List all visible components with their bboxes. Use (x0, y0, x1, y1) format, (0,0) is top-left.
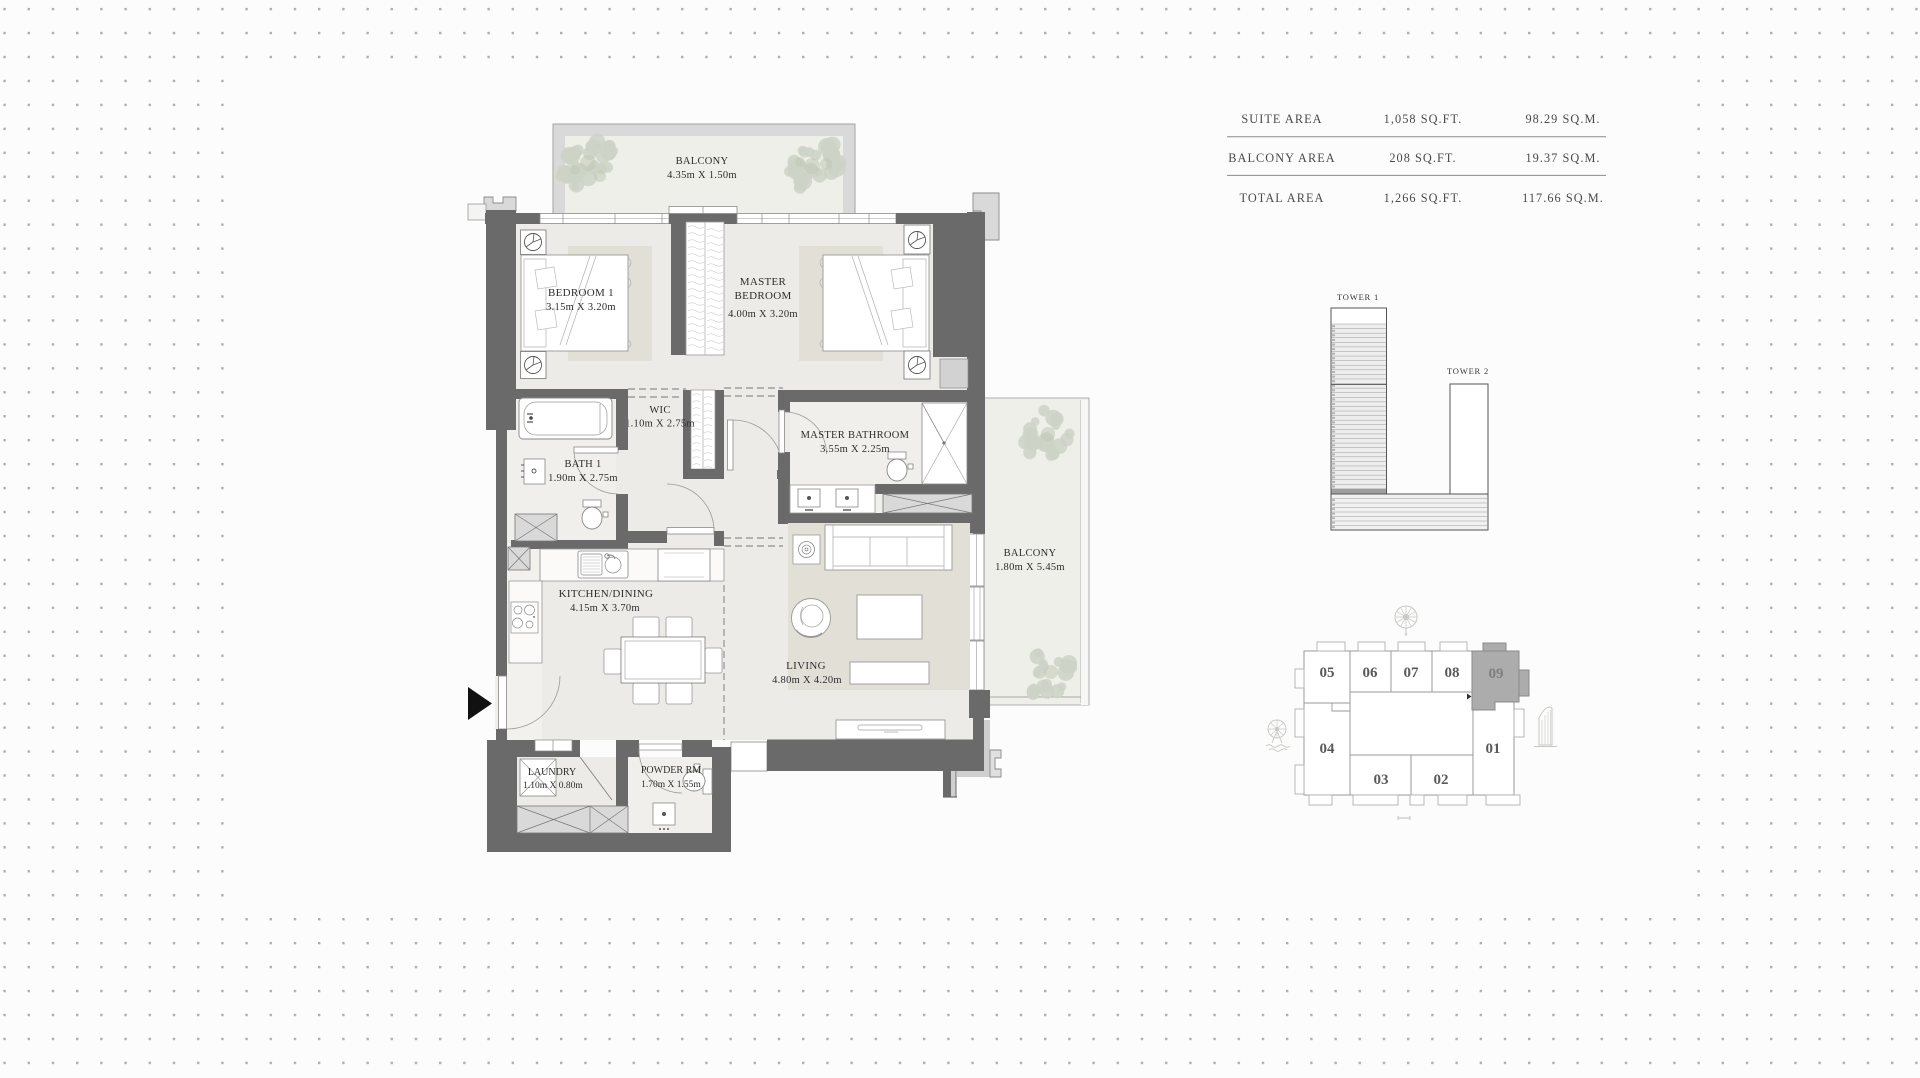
svg-text:TOWER 1: TOWER 1 (1337, 292, 1379, 302)
svg-text:TOTAL AREA: TOTAL AREA (1239, 191, 1324, 205)
svg-text:LIVING: LIVING (786, 660, 826, 672)
svg-text:4.15m X 3.70m: 4.15m X 3.70m (570, 603, 640, 614)
svg-text:TOWER 2: TOWER 2 (1447, 366, 1489, 376)
svg-text:4.00m X 3.20m: 4.00m X 3.20m (728, 309, 798, 320)
svg-text:BATH 1: BATH 1 (564, 459, 601, 470)
svg-text:3.15m X 3.20m: 3.15m X 3.20m (546, 302, 616, 313)
svg-text:BEDROOM: BEDROOM (734, 290, 791, 302)
svg-text:4.35m X 1.50m: 4.35m X 1.50m (667, 170, 737, 181)
svg-text:BALCONY: BALCONY (676, 156, 729, 167)
svg-text:WIC: WIC (649, 405, 670, 416)
svg-text:1,058 SQ.FT.: 1,058 SQ.FT. (1384, 112, 1463, 126)
svg-text:19.37 SQ.M.: 19.37 SQ.M. (1525, 151, 1600, 165)
svg-text:09: 09 (1489, 666, 1504, 682)
svg-text:MASTER BATHROOM: MASTER BATHROOM (801, 430, 910, 441)
svg-text:KITCHEN/DINING: KITCHEN/DINING (559, 588, 654, 600)
svg-text:02: 02 (1434, 772, 1449, 788)
svg-text:1.90m X 2.75m: 1.90m X 2.75m (548, 473, 618, 484)
svg-text:07: 07 (1404, 665, 1420, 681)
svg-text:1.80m X 5.45m: 1.80m X 5.45m (995, 562, 1065, 573)
svg-text:MASTER: MASTER (740, 276, 787, 288)
svg-text:4.80m X 4.20m: 4.80m X 4.20m (772, 675, 842, 686)
svg-text:BALCONY: BALCONY (1004, 548, 1057, 559)
svg-text:1.10m X 2.75m: 1.10m X 2.75m (625, 419, 695, 430)
svg-text:117.66 SQ.M.: 117.66 SQ.M. (1522, 191, 1604, 205)
svg-text:04: 04 (1320, 741, 1336, 757)
svg-text:208 SQ.FT.: 208 SQ.FT. (1389, 151, 1456, 165)
svg-text:SUITE AREA: SUITE AREA (1241, 112, 1322, 126)
svg-text:01: 01 (1486, 741, 1501, 757)
svg-text:98.29 SQ.M.: 98.29 SQ.M. (1525, 112, 1600, 126)
svg-text:1.10m X 0.80m: 1.10m X 0.80m (523, 781, 583, 791)
svg-text:05: 05 (1320, 665, 1335, 681)
svg-text:3.55m X 2.25m: 3.55m X 2.25m (820, 444, 890, 455)
svg-text:08: 08 (1445, 665, 1460, 681)
svg-text:03: 03 (1374, 772, 1389, 788)
svg-text:1.70m X 1.55m: 1.70m X 1.55m (641, 780, 701, 790)
svg-text:06: 06 (1363, 665, 1379, 681)
svg-text:LAUNDRY: LAUNDRY (528, 767, 576, 778)
svg-text:1,266 SQ.FT.: 1,266 SQ.FT. (1384, 191, 1463, 205)
svg-text:POWDER RM: POWDER RM (641, 765, 701, 776)
svg-text:BEDROOM 1: BEDROOM 1 (548, 287, 614, 299)
svg-text:BALCONY AREA: BALCONY AREA (1228, 151, 1335, 165)
